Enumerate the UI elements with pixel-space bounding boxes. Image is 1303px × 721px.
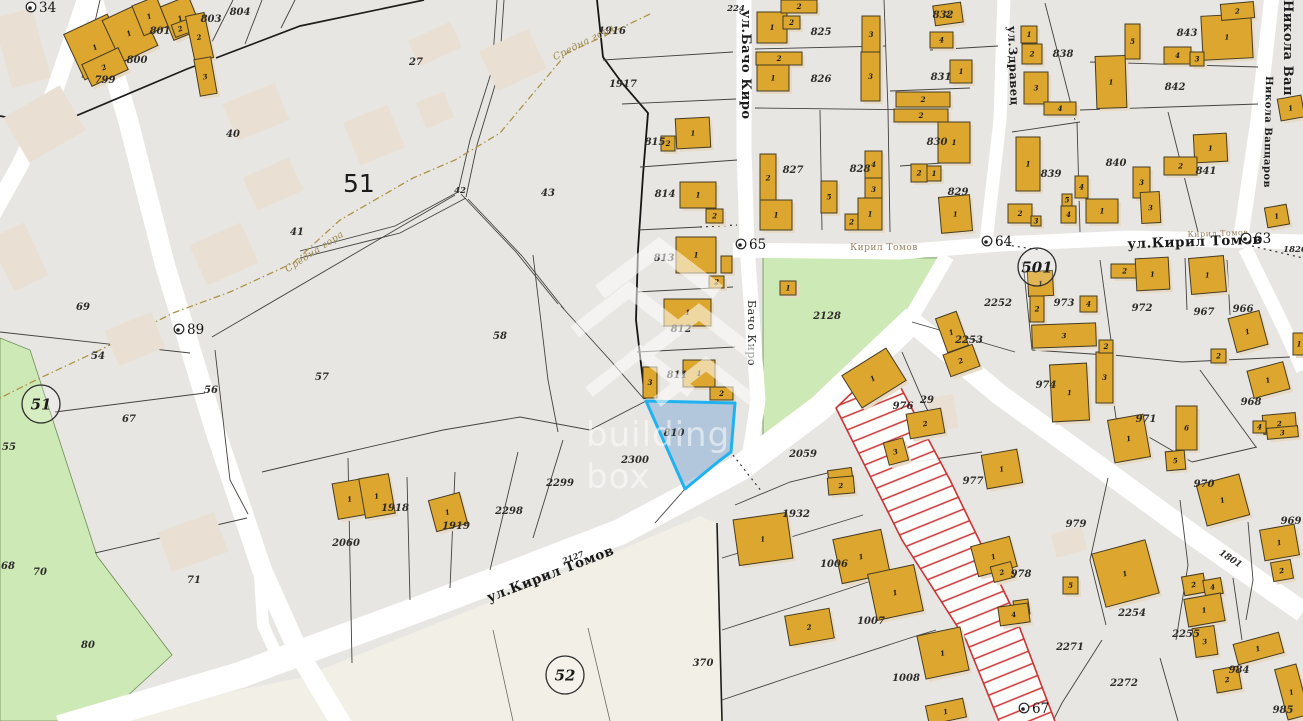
parcel-number-label: 979 <box>1066 519 1087 530</box>
building-number: 2 <box>711 212 717 221</box>
parcel-number-label: 977 <box>963 476 984 487</box>
building-number: 4 <box>1066 210 1071 219</box>
parcel-number-label: 2059 <box>788 449 817 460</box>
building-number: 3 <box>1034 217 1039 226</box>
survey-marker-number[interactable]: 34 <box>39 0 56 16</box>
building-number: 2 <box>837 481 844 490</box>
parcel-number-label: 843 <box>1177 28 1198 39</box>
building-number: 2 <box>776 54 782 63</box>
building-number: 3 <box>1139 178 1144 187</box>
parcel-number-label: 370 <box>693 658 714 669</box>
building-number: 3 <box>1148 203 1153 212</box>
building-number: 1 <box>1224 32 1229 41</box>
parcel-number-label: 830 <box>927 137 948 148</box>
parcel-number-label: 825 <box>811 27 832 38</box>
parcel-number-label: 68 <box>1 561 15 572</box>
parcel-number-label: 803 <box>201 14 222 25</box>
building-number: 1 <box>694 251 699 260</box>
parcel-number-label: 27 <box>408 57 423 68</box>
building-number: 3 <box>1195 55 1200 64</box>
parcel-number-label: 1008 <box>892 673 920 684</box>
building-number: 2 <box>765 174 771 183</box>
parcel-number-label: 54 <box>91 351 105 362</box>
building-number: 1 <box>1150 269 1155 278</box>
parcel-number-label: 40 <box>226 129 240 140</box>
parcel-number-label: 2298 <box>494 506 523 517</box>
building-number: 3 <box>868 72 873 81</box>
parcel-number-label: 804 <box>230 7 251 18</box>
parcel-number-label: 1932 <box>782 509 810 520</box>
district-number-label: 51 <box>343 169 375 198</box>
building-number: 4 <box>1058 104 1063 113</box>
survey-marker-dot <box>984 240 988 244</box>
parcel-number-label: 969 <box>1281 516 1302 527</box>
parcel-number-label: 67 <box>122 414 136 425</box>
building-number: 1 <box>1297 340 1302 349</box>
building-number: 1 <box>690 128 695 137</box>
street-name-label: ул.Здравец <box>1005 26 1022 106</box>
building-number: 1 <box>771 74 776 83</box>
parcel-number-label: 71 <box>187 575 201 586</box>
parcel-number-label: 967 <box>1194 307 1215 318</box>
survey-marker-dot <box>28 6 32 10</box>
building-number: 2 <box>718 389 724 398</box>
building-number: 1 <box>774 211 779 220</box>
parcel-number-label: 827 <box>783 165 804 176</box>
watermark-line1: building <box>586 415 730 455</box>
building[interactable] <box>721 256 732 273</box>
building-number: 1 <box>1026 160 1031 169</box>
parcel-number-label: 29 <box>919 395 934 406</box>
building-number: 2 <box>665 139 671 148</box>
parcel-number-label: 1006 <box>820 559 848 570</box>
watermark-line2: box <box>586 457 650 497</box>
building-number: 6 <box>1184 424 1189 433</box>
building-number: 3 <box>871 185 876 194</box>
parcel-number-label: 974 <box>1036 380 1057 391</box>
building-number: 1 <box>1108 78 1113 87</box>
parcel-number-label: 2252 <box>983 298 1012 309</box>
building-number: 1 <box>786 284 791 293</box>
building-number: 5 <box>827 193 832 202</box>
parcel-number-label: 2272 <box>1109 678 1138 689</box>
building-number: 5 <box>1172 456 1178 465</box>
building-number: 2 <box>1017 209 1023 218</box>
building-number: 2 <box>920 95 926 104</box>
parcel-number-label: 970 <box>1194 479 1215 490</box>
building-number: 2 <box>1177 162 1183 171</box>
building-number: 2 <box>1121 267 1127 276</box>
building-number: 5 <box>1068 581 1073 590</box>
parcel-number-label: 840 <box>1106 158 1127 169</box>
parcel-number-label: 41 <box>290 227 304 238</box>
parcel-number-label: 829 <box>948 187 969 198</box>
parcel-number-label: 800 <box>127 55 148 66</box>
parcel-number-label: 80 <box>81 640 95 651</box>
parcel-number-label: 2299 <box>545 478 574 489</box>
parcel-number-label: 815 <box>645 137 666 148</box>
parcel-number-label: 971 <box>1136 414 1157 425</box>
block-marker-number: 52 <box>555 667 576 685</box>
building-number: 3 <box>1102 373 1107 382</box>
parcel-number-label: 2128 <box>812 311 841 322</box>
survey-marker-dot <box>176 328 180 332</box>
block-marker-number: 51 <box>31 396 52 414</box>
building-number: 1 <box>770 23 775 32</box>
parcel-number-label: 841 <box>1196 166 1217 177</box>
parcel-number-label: 973 <box>1054 298 1075 309</box>
parcel-number-label: 57 <box>315 372 329 383</box>
building-number: 2 <box>916 169 922 178</box>
building-number: 3 <box>1279 428 1285 437</box>
building-number: 1 <box>959 67 964 76</box>
parcel-number-label: 42 <box>454 186 466 196</box>
survey-marker-number[interactable]: 67 <box>1032 701 1049 717</box>
building-number: 2 <box>1233 6 1240 15</box>
parcel-number-label: 2254 <box>1117 608 1146 619</box>
building-number: 2 <box>1215 352 1221 361</box>
survey-marker-dot <box>738 243 742 247</box>
building-number: 1 <box>868 210 873 219</box>
street-name-label: Никола Вапцаров <box>1261 76 1274 188</box>
parcel-number-label: 839 <box>1041 169 1062 180</box>
building-number: 1 <box>932 169 937 178</box>
survey-marker-number[interactable]: 64 <box>995 234 1012 250</box>
parcel-number-label: 966 <box>1233 304 1254 315</box>
parcel-number-label: 828 <box>850 164 871 175</box>
building-number: 3 <box>869 30 874 39</box>
parcel-number-label: 985 <box>1273 705 1294 716</box>
survey-marker-dot <box>1021 707 1025 711</box>
building-number: 4 <box>1086 300 1091 309</box>
building-number: 1 <box>1204 270 1210 279</box>
building-number: 1 <box>952 209 958 218</box>
building-number: 2 <box>918 111 924 120</box>
building-number: 4 <box>871 160 876 169</box>
building-number: 4 <box>1175 51 1180 60</box>
parcel-number-label: 2255 <box>1171 629 1200 640</box>
parcel-number-label: 55 <box>2 442 16 453</box>
parcel-number-label: 1919 <box>442 521 470 532</box>
building-number: 2 <box>1034 305 1040 314</box>
street-name-label: Кирил Томов <box>850 243 918 253</box>
building-number: 1 <box>1208 143 1213 152</box>
street-name-label: ул.Бачо Киро <box>738 10 753 120</box>
parcel-number-label: 1918 <box>381 503 409 514</box>
parcel-number-label: 978 <box>1011 569 1032 580</box>
parcel-number-label: 1007 <box>857 616 885 627</box>
parcel-number-label: 2253 <box>954 335 983 346</box>
parcel-number-label: 56 <box>204 385 218 396</box>
parcel-number-label: 968 <box>1241 397 1262 408</box>
building-number: 2 <box>1029 50 1035 59</box>
building-number: 3 <box>1034 84 1039 93</box>
building-number: 1 <box>1100 207 1105 216</box>
parcel-number-label: 972 <box>1132 303 1153 314</box>
building-number: 3 <box>648 378 653 387</box>
survey-marker-dot <box>1243 237 1247 241</box>
survey-marker-number[interactable]: 63 <box>1254 231 1271 247</box>
parcel-number-label: 43 <box>541 188 555 199</box>
building-number: 2 <box>788 18 794 27</box>
parcel-number-label: 801 <box>150 26 171 37</box>
parcel-number-label: 842 <box>1165 82 1186 93</box>
parcel-number-label: 838 <box>1053 49 1074 60</box>
building-number: 1 <box>1027 30 1032 39</box>
cadastral-map-viewport[interactable]: 1121122312121211231223213215431212212114… <box>0 0 1303 721</box>
parcel-number-label: 799 <box>95 75 116 86</box>
parcel-number-label: 1917 <box>609 79 637 90</box>
building-number: 4 <box>939 36 944 45</box>
parcel-number-label: 2060 <box>331 538 360 549</box>
parcel-number-label: 58 <box>493 331 507 342</box>
parcel-number-label: 826 <box>811 74 832 85</box>
parcel-number-label: 69 <box>76 302 90 313</box>
survey-marker-number[interactable]: 89 <box>187 322 204 338</box>
parcel-number-label: 832 <box>933 10 954 21</box>
map-canvas[interactable]: 1121122312121211231223213215431212212114… <box>0 0 1303 721</box>
building-number: 1 <box>696 191 701 200</box>
parcel-number-label: 2271 <box>1055 642 1084 653</box>
parcel-number-label: 1826 <box>1283 245 1303 255</box>
parcel-number-label: 831 <box>931 72 952 83</box>
building-number: 2 <box>1103 342 1109 351</box>
building-number: 2 <box>848 218 854 227</box>
parcel-number-label: 976 <box>893 401 914 412</box>
building-number: 5 <box>1130 37 1135 46</box>
street-name-label: Никола Вап <box>1280 0 1295 96</box>
survey-marker-number[interactable]: 65 <box>749 237 766 253</box>
building-number: 4 <box>1079 183 1084 192</box>
parcel-number-label: 70 <box>33 567 47 578</box>
building-number: 4 <box>1257 423 1262 432</box>
building-number: 5 <box>1065 196 1070 205</box>
building-number: 1 <box>952 138 957 147</box>
parcel-number-label: 814 <box>655 189 676 200</box>
parcel-number-label: 984 <box>1229 665 1250 676</box>
building-number: 3 <box>1061 331 1066 340</box>
building-number: 2 <box>796 2 802 11</box>
building-number: 1 <box>1067 388 1072 397</box>
block-marker-number: 501 <box>1021 259 1052 277</box>
